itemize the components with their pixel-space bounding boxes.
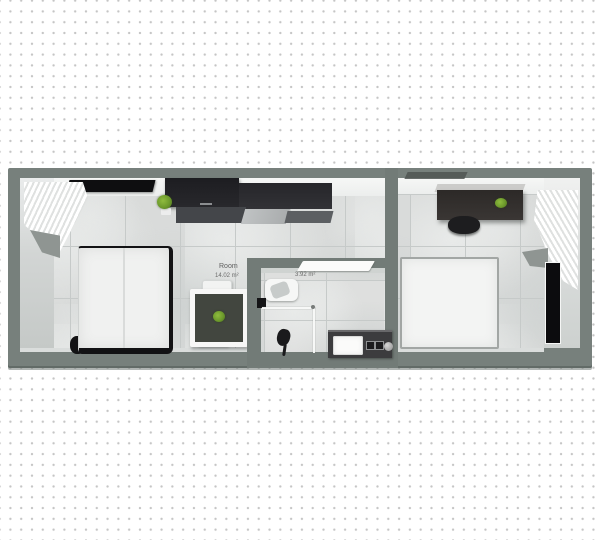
room-right-double-bed[interactable] <box>400 257 499 349</box>
glass-joint <box>311 305 315 309</box>
plant-pot <box>161 208 171 215</box>
cabinet-handle <box>200 203 212 205</box>
dining-table[interactable] <box>190 289 248 347</box>
table-plant[interactable] <box>213 311 225 322</box>
kitchen-plant[interactable] <box>157 195 172 209</box>
washer-knob-2 <box>375 341 384 350</box>
floorplan-canvas: Room 14.02 m² 3.92 m² <box>0 0 600 540</box>
bathroom-door-panel[interactable] <box>297 261 375 271</box>
washer-knob-1 <box>366 341 375 350</box>
kitchen-counter-dark[interactable] <box>176 207 246 223</box>
desk-plant[interactable] <box>495 198 507 208</box>
room-left-area-label: 14.02 m² <box>215 273 239 280</box>
room-right-ceiling-beam <box>404 172 467 179</box>
toilet-bowl <box>269 280 291 299</box>
desk-chair[interactable] <box>448 216 480 234</box>
kitchen-upper-cabinet-right[interactable] <box>239 183 332 209</box>
desk[interactable] <box>437 190 523 220</box>
washer-dial <box>384 342 393 351</box>
room-left-double-bed[interactable] <box>78 246 173 354</box>
shower-glass-screen-horizontal[interactable] <box>262 307 315 309</box>
sink-basin <box>333 336 363 355</box>
kitchen-counter-light[interactable] <box>241 209 290 224</box>
kitchen-counter-mid[interactable] <box>285 211 334 223</box>
toilet[interactable] <box>265 279 298 301</box>
room-left-label: Room <box>219 263 238 271</box>
shower-glass-screen-vertical[interactable] <box>313 307 315 353</box>
duvet-seam <box>123 248 125 348</box>
divider-wall <box>385 168 398 264</box>
bathroom-area-label: 3.92 m² <box>295 272 315 279</box>
radiator-panel[interactable] <box>545 262 561 344</box>
vanity-washer-unit[interactable] <box>328 330 392 358</box>
